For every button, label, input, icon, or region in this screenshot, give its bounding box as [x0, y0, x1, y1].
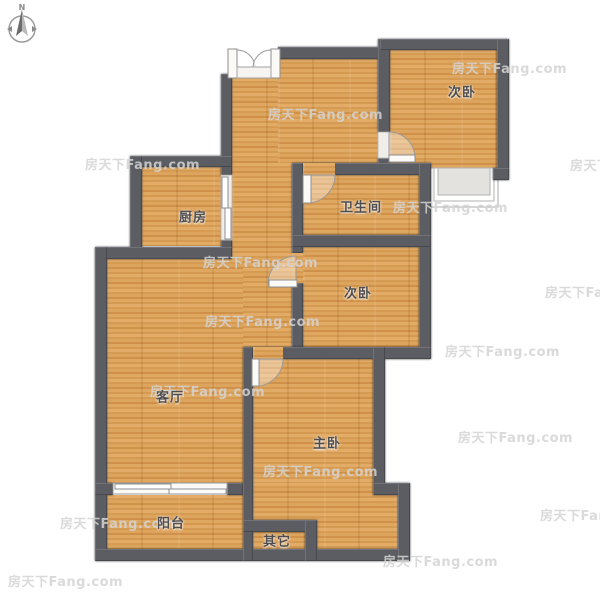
- compass-icon: N: [7, 3, 37, 42]
- bathroom-door: [303, 175, 335, 203]
- room-label-bedroom-mid-right: 次卧: [344, 283, 372, 302]
- watermark: 房天下Fang.com: [85, 154, 200, 173]
- symbol-layer: N: [0, 0, 600, 600]
- watermark: 房天下Fang.com: [540, 505, 600, 524]
- watermark: 房天下Fang.com: [205, 311, 320, 330]
- watermark: 房天下Fang.com: [545, 282, 600, 301]
- room-label-other: 其它: [263, 531, 291, 550]
- kitchen-sliding-door: [221, 175, 232, 240]
- entrance-double-door: [228, 49, 280, 78]
- watermark: 房天下Fang.com: [458, 427, 573, 446]
- watermark: 房天下Fang.com: [445, 341, 560, 360]
- watermark: 房天下Fang.com: [393, 197, 508, 216]
- room-label-balcony: 阳台: [157, 513, 185, 532]
- bedroom-top-right-door: [378, 132, 415, 162]
- room-label-master: 主卧: [313, 433, 341, 452]
- room-label-living: 客厅: [156, 387, 184, 406]
- room-label-kitchen: 厨房: [179, 207, 207, 226]
- room-label-bedroom-top-right: 次卧: [448, 82, 476, 101]
- watermark: 房天下Fang.com: [452, 58, 567, 77]
- watermark: 房天下Fang.com: [383, 551, 498, 570]
- watermark: 房天下Fang.com: [570, 155, 600, 174]
- room-label-bathroom: 卫生间: [340, 197, 382, 216]
- watermark: 房天下Fang.com: [8, 571, 123, 590]
- floor-plan: N 房天下Fang.com 房天下Fang.com 房天下Fang.com 房天…: [0, 0, 600, 600]
- balcony-sliding-window: [113, 483, 227, 494]
- watermark: 房天下Fang.com: [203, 252, 318, 271]
- watermark: 房天下Fang.com: [263, 461, 378, 480]
- watermark: 房天下Fang.com: [268, 104, 383, 123]
